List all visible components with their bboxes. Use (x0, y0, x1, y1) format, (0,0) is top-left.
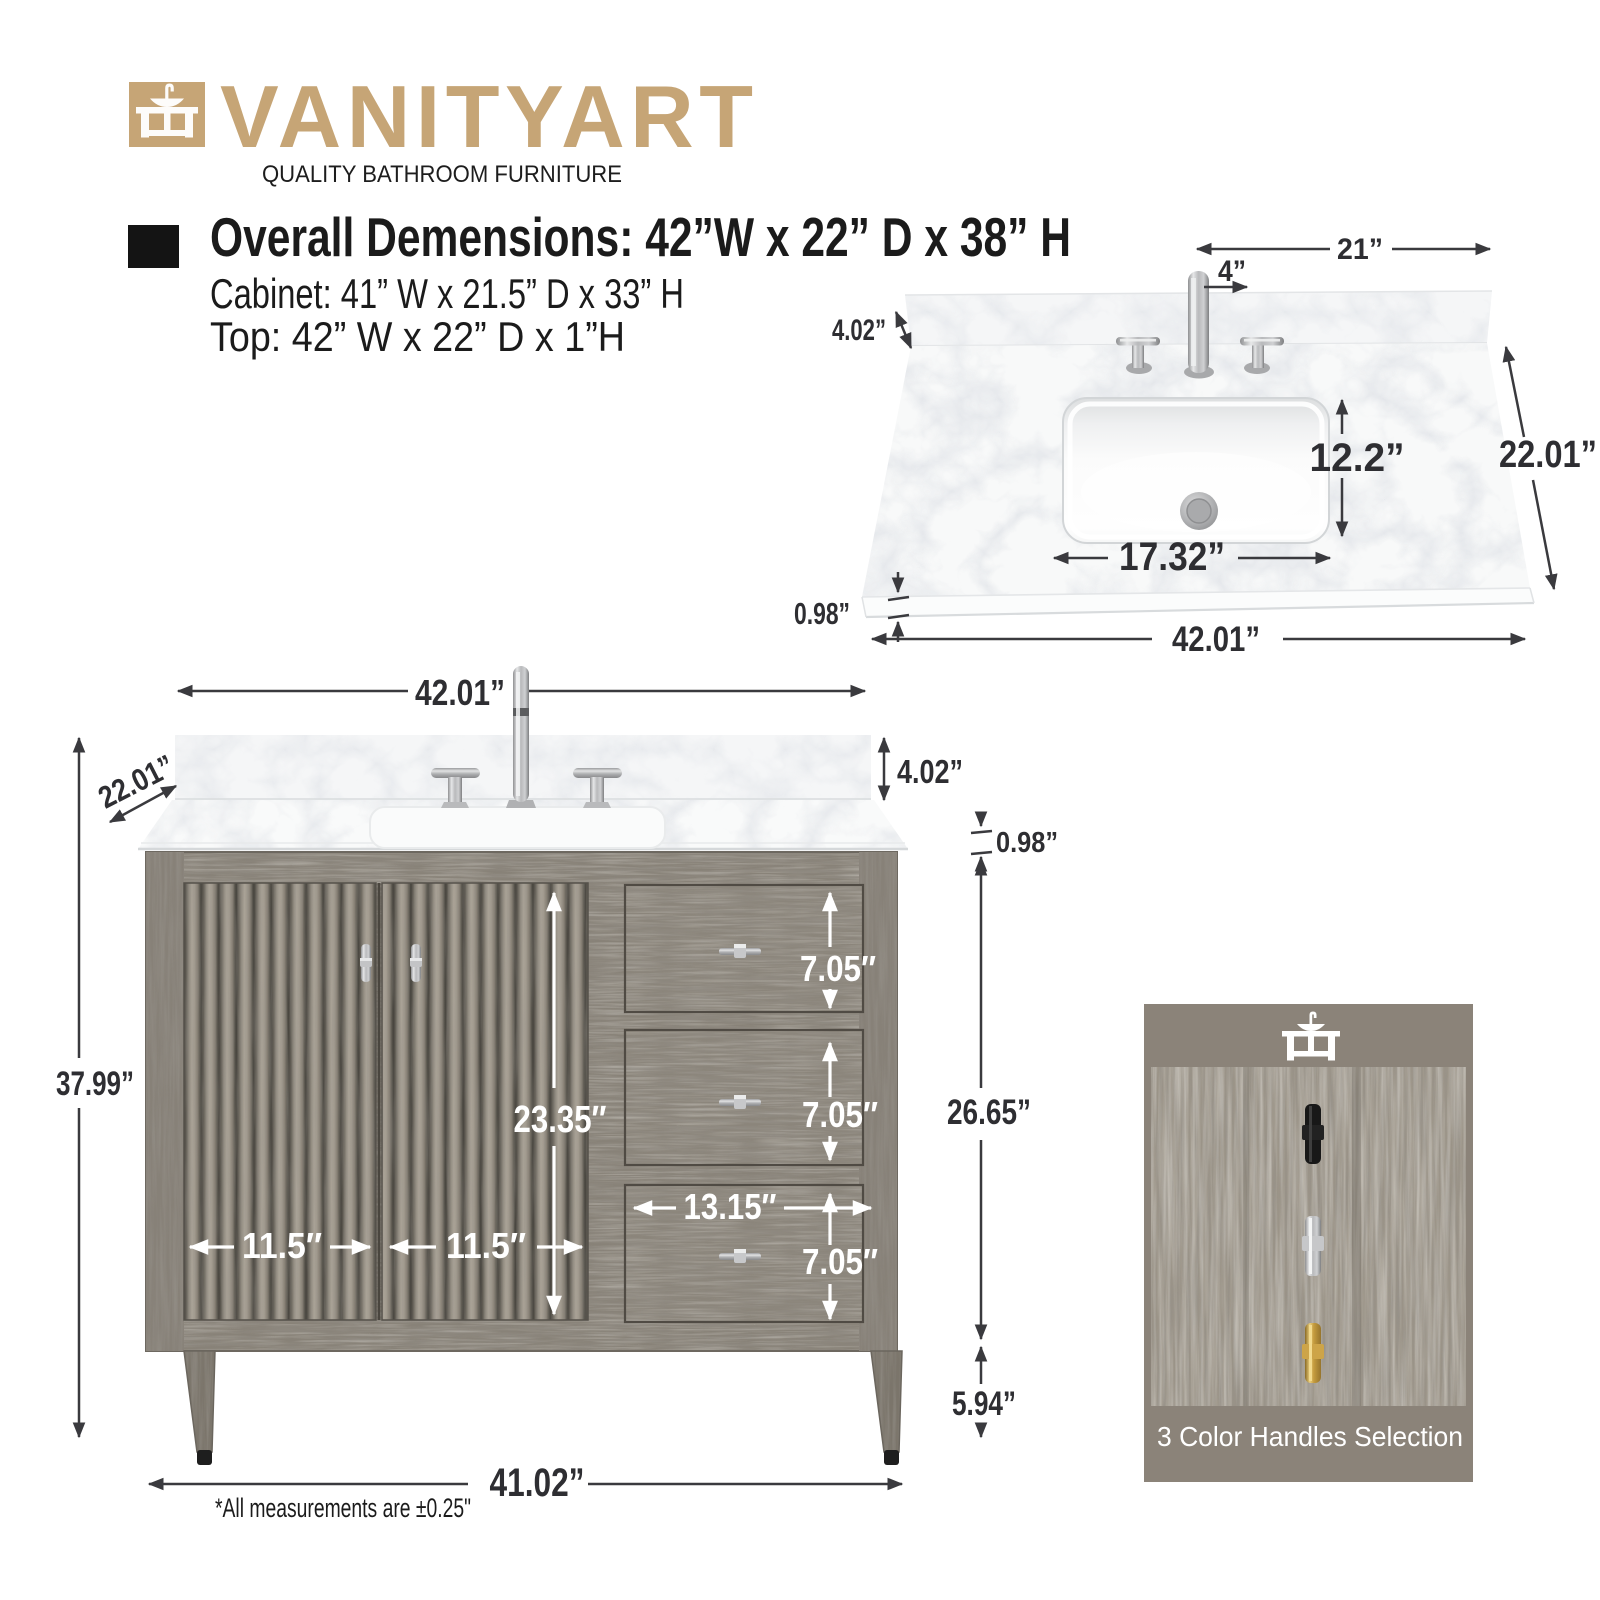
svg-text:QUALITY BATHROOM FURNITURE: QUALITY BATHROOM FURNITURE (262, 161, 622, 188)
svg-text:13.15″: 13.15″ (684, 1186, 777, 1227)
svg-text:26.65”: 26.65” (947, 1093, 1031, 1132)
svg-text:VANITYART: VANITYART (220, 67, 753, 166)
svg-text:22.01”: 22.01” (93, 748, 180, 816)
svg-text:7.05″: 7.05″ (802, 1094, 878, 1135)
svg-text:7.05″: 7.05″ (802, 1241, 878, 1282)
svg-text:*All measurements are ±0.25": *All measurements are ±0.25" (215, 1493, 471, 1523)
svg-text:4.02”: 4.02” (897, 753, 963, 790)
svg-text:41.02”: 41.02” (490, 1461, 585, 1505)
svg-text:22.01”: 22.01” (1499, 434, 1597, 476)
svg-text:21”: 21” (1337, 233, 1383, 266)
svg-text:5.94”: 5.94” (952, 1385, 1016, 1423)
svg-text:23.35″: 23.35″ (514, 1099, 607, 1141)
svg-text:4”: 4” (1218, 255, 1246, 288)
svg-text:0.98”: 0.98” (996, 827, 1058, 859)
svg-text:12.2”: 12.2” (1310, 436, 1405, 480)
svg-text:Overall Demensions: 42”W x 22”: Overall Demensions: 42”W x 22” D x 38” H (210, 206, 1071, 268)
svg-text:37.99”: 37.99” (56, 1065, 134, 1103)
svg-text:Cabinet: 41” W x 21.5” D x 33”: Cabinet: 41” W x 21.5” D x 33” H (210, 270, 684, 317)
svg-text:0.98”: 0.98” (794, 596, 850, 631)
svg-text:3 Color Handles Selection: 3 Color Handles Selection (1157, 1421, 1463, 1452)
svg-text:42.01”: 42.01” (415, 672, 505, 713)
svg-text:11.5″: 11.5″ (446, 1225, 526, 1266)
svg-text:11.5″: 11.5″ (242, 1225, 322, 1266)
svg-text:17.32”: 17.32” (1119, 535, 1225, 579)
svg-text:7.05″: 7.05″ (800, 948, 876, 989)
svg-text:Top: 42” W x 22” D x 1”H: Top: 42” W x 22” D x 1”H (210, 313, 625, 360)
svg-text:42.01”: 42.01” (1172, 620, 1260, 659)
svg-text:4.02”: 4.02” (832, 314, 886, 347)
